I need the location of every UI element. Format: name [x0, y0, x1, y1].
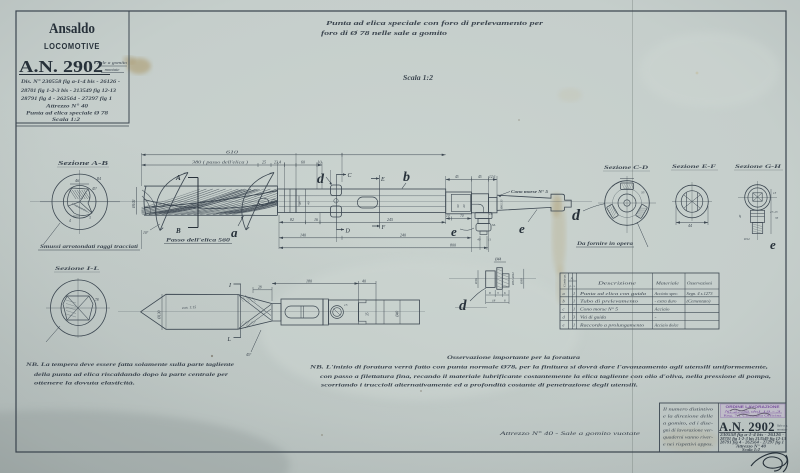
svg-text:quaderni vanno river-: quaderni vanno river-: [663, 435, 714, 440]
svg-text:Sale a gomito: Sale a gomito: [97, 60, 128, 65]
svg-text:1: 1: [573, 307, 575, 312]
svg-text:D: D: [345, 229, 351, 235]
svg-text:28: 28: [258, 286, 262, 290]
svg-text:B: B: [175, 227, 181, 235]
svg-text:e: e: [563, 322, 565, 327]
svg-text:Ø63.35: Ø63.35: [500, 199, 504, 210]
svg-text:Viti di guida: Viti di guida: [580, 314, 606, 319]
svg-text:(Cementato): (Cementato): [687, 300, 712, 304]
svg-text:45: 45: [455, 175, 459, 179]
svg-text:13: 13: [773, 191, 777, 195]
svg-text:p.: p.: [569, 284, 573, 288]
svg-text:40: 40: [477, 238, 481, 242]
svg-text:E: E: [380, 177, 385, 183]
svg-text:25: 25: [262, 160, 266, 165]
svg-text:e la direzione delle: e la direzione delle: [663, 414, 713, 419]
svg-text:e: e: [451, 224, 457, 239]
svg-text:Tubo di prelevamento: Tubo di prelevamento: [580, 299, 638, 304]
svg-text:- extra duro: - extra duro: [655, 299, 677, 304]
svg-text:Smussi arrotondati raggi tracc: Smussi arrotondati raggi tracciati: [40, 244, 139, 250]
svg-text:Ansaldo: Ansaldo: [49, 21, 95, 37]
svg-text:Attrezzo N° 40 - Sale a gomito: Attrezzo N° 40 - Sale a gomito vuotate: [498, 430, 640, 437]
svg-text:35: 35: [641, 191, 645, 195]
svg-text:28791 fig 4 - 262564 - 27297 f: 28791 fig 4 - 262564 - 27297 fig 1: [20, 96, 113, 102]
svg-text:35: 35: [775, 216, 779, 220]
svg-text:a: a: [231, 225, 238, 240]
svg-text:1: 1: [573, 299, 575, 304]
svg-text:L: L: [227, 337, 232, 343]
svg-text:45: 45: [478, 175, 482, 179]
svg-text:180: 180: [306, 278, 312, 283]
svg-text:45°: 45°: [246, 353, 252, 357]
svg-text:Attrezzo N° 40: Attrezzo N° 40: [45, 103, 89, 110]
svg-text:A: A: [175, 174, 181, 182]
svg-text:Scala 1:2: Scala 1:2: [403, 75, 434, 82]
svg-text:15: 15: [344, 303, 348, 307]
svg-text:Acciaio spec.: Acciaio spec.: [653, 291, 678, 296]
svg-text:montate: montate: [777, 428, 788, 432]
svg-text:Ø38: Ø38: [520, 278, 524, 285]
svg-text:245: 245: [387, 217, 393, 222]
svg-text:610: 610: [226, 149, 240, 154]
svg-text:Punta ad elica con guida: Punta ad elica con guida: [578, 291, 646, 296]
svg-text:e: e: [770, 237, 776, 252]
svg-text:10: 10: [318, 160, 322, 165]
svg-text:44: 44: [688, 223, 692, 228]
svg-text:foro di Ø 78 nelle sale a gomi: foro di Ø 78 nelle sale a gomito: [321, 30, 447, 37]
svg-text:18: 18: [492, 298, 496, 302]
svg-text:40: 40: [362, 278, 366, 283]
svg-text:gni di lavorazione ver-: gni di lavorazione ver-: [663, 428, 714, 433]
svg-text:1: 1: [573, 322, 575, 327]
svg-text:Cono morse N° 5: Cono morse N° 5: [511, 189, 548, 194]
svg-text:Ø130: Ø130: [158, 310, 162, 320]
svg-text:con passo a filettatura fina,: con passo a filettatura fina, recando il…: [320, 374, 771, 380]
svg-text:d: d: [459, 298, 467, 314]
svg-text:Sezione I-L: Sezione I-L: [55, 266, 100, 272]
svg-text:LOCOMOTIVE: LOCOMOTIVE: [44, 42, 100, 51]
svg-text:M.: M.: [491, 223, 496, 227]
svg-text:78: 78: [95, 298, 99, 302]
svg-text:45°: 45°: [92, 187, 98, 191]
svg-text:Descrizione: Descrizione: [596, 281, 636, 286]
svg-text:d: d: [572, 207, 581, 224]
svg-text:Cono morse N° 5: Cono morse N° 5: [580, 307, 618, 312]
svg-text:82: 82: [290, 217, 294, 222]
svg-text:Ø52-Ø42: Ø52-Ø42: [511, 272, 515, 286]
svg-text:scorriando i truccioli alterna: scorriando i truccioli alternativamente …: [319, 383, 638, 389]
svg-text:70: 70: [460, 214, 464, 218]
svg-text:10: 10: [446, 214, 450, 218]
svg-text:240: 240: [400, 232, 406, 237]
svg-text:Passo dell'elica 560: Passo dell'elica 560: [166, 238, 231, 244]
svg-text:NB. L'inizio di foratura verrà: NB. L'inizio di foratura verrà fatto con…: [308, 365, 768, 371]
svg-text:ottenere la dovuta elasticità.: ottenere la dovuta elasticità.: [34, 381, 135, 387]
svg-text:A.N. 2902: A.N. 2902: [719, 420, 775, 434]
svg-text:montate: montate: [105, 67, 120, 72]
svg-text:Il numero distintivo: Il numero distintivo: [662, 407, 714, 412]
svg-text:140: 140: [300, 232, 306, 237]
svg-text:28701 fig 1-2-3 bis - 213549 f: 28701 fig 1-2-3 bis - 213549 fig 12-13: [20, 88, 117, 94]
svg-text:Raccordo a prolungamento: Raccordo a prolungamento: [579, 322, 644, 327]
svg-text:35: 35: [366, 312, 370, 316]
svg-text:Osservazione importante per la: Osservazione importante per la foratura: [447, 355, 580, 361]
svg-text:Sezione E-F: Sezione E-F: [672, 164, 717, 170]
svg-text:F: F: [381, 225, 386, 231]
svg-text:Punta ad elica speciale Ø 78: Punta ad elica speciale Ø 78: [26, 111, 109, 117]
svg-text:30: 30: [456, 204, 460, 208]
svg-text:Punta ad elica speciale con fo: Punta ad elica speciale con foro di prel…: [326, 20, 544, 27]
svg-text:Dis. N° 230558 fig a-1-4 bis -: Dis. N° 230558 fig a-1-4 bis - 26126 -: [20, 78, 121, 85]
svg-text:Acciaio: Acciaio: [653, 307, 669, 312]
svg-text:380 ( passo dell'elica ): 380 ( passo dell'elica ): [192, 160, 249, 165]
svg-text:Scala 1:2: Scala 1:2: [742, 448, 760, 452]
svg-text:Contras.: Contras.: [564, 274, 567, 287]
svg-text:e: e: [519, 221, 525, 236]
svg-text:d: d: [317, 172, 325, 187]
svg-text:Segn. 4 s.1273: Segn. 4 s.1273: [687, 292, 713, 296]
svg-text:800: 800: [450, 242, 456, 247]
svg-text:A.N. 2902: A.N. 2902: [19, 57, 103, 76]
svg-text:3: 3: [573, 314, 575, 319]
svg-text:Ø40: Ø40: [396, 311, 400, 318]
svg-text:60: 60: [301, 160, 305, 165]
svg-text:40: 40: [307, 201, 311, 205]
svg-text:45: 45: [298, 201, 302, 205]
svg-text:Sezione C-D: Sezione C-D: [604, 165, 648, 171]
svg-text:N.: N.: [570, 277, 574, 281]
svg-text:R4: R4: [96, 177, 101, 181]
svg-text:Sezione G-H: Sezione G-H: [735, 164, 782, 170]
svg-text:16: 16: [489, 212, 493, 216]
svg-text:4: 4: [69, 219, 71, 223]
svg-text:Ø16: Ø16: [474, 278, 478, 285]
svg-text:s.: s.: [574, 284, 576, 288]
svg-text:3: 3: [89, 216, 91, 220]
svg-text:Ø12: Ø12: [743, 237, 750, 241]
svg-text:Scala 1:2: Scala 1:2: [52, 117, 81, 123]
svg-text:Sezione A-B: Sezione A-B: [58, 161, 108, 167]
svg-text:Osservazioni: Osservazioni: [687, 281, 712, 286]
svg-text:16: 16: [314, 217, 318, 222]
svg-text:c: c: [563, 307, 565, 312]
svg-text:1: 1: [573, 291, 575, 296]
svg-text:Materiale: Materiale: [655, 281, 680, 286]
svg-text:Da fornire in opera: Da fornire in opera: [576, 242, 634, 247]
svg-text:b: b: [403, 170, 410, 185]
svg-text:NB. La tempera deve essere fat: NB. La tempera deve essere fatta solamen…: [25, 362, 235, 368]
svg-text:10°: 10°: [143, 231, 149, 235]
svg-text:Ø44: Ø44: [494, 258, 501, 262]
svg-text:Acciaio dolce: Acciaio dolce: [653, 322, 678, 327]
svg-text:40: 40: [738, 214, 742, 218]
svg-text:27-13: 27-13: [770, 210, 778, 214]
svg-text:Ø102: Ø102: [132, 199, 136, 209]
svg-text:con. 1:15: con. 1:15: [182, 305, 197, 310]
svg-text:40: 40: [462, 204, 466, 208]
svg-text:e nei rispettivi appos.: e nei rispettivi appos.: [663, 442, 713, 447]
svg-text:della punta ad elica riscaldan: della punta ad elica riscaldando dopo la…: [34, 372, 229, 378]
